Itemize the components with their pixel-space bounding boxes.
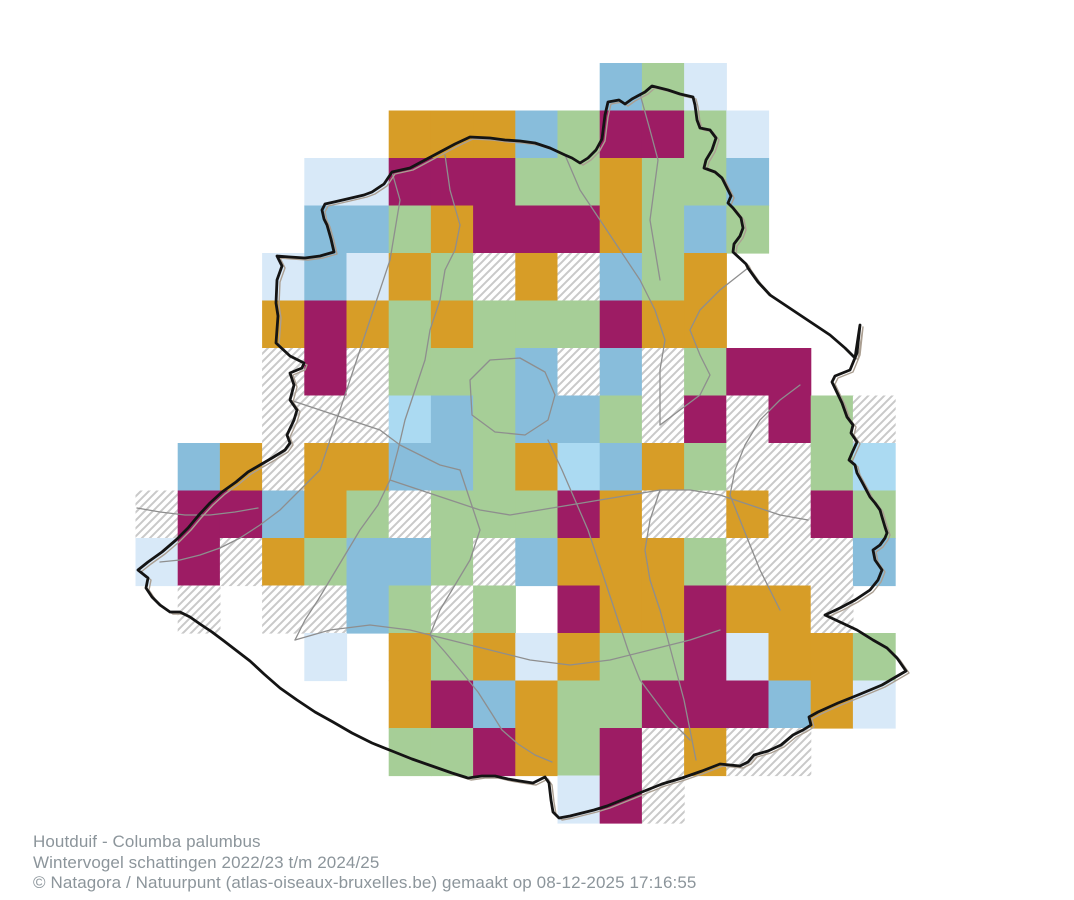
grid-cell	[769, 633, 812, 681]
grid-cell	[811, 443, 854, 491]
grid-cell	[389, 681, 432, 729]
grid-cell	[515, 538, 558, 586]
grid-cell	[389, 491, 432, 539]
grid-cell	[431, 396, 474, 444]
grid-cell	[515, 301, 558, 349]
grid-cell	[684, 586, 727, 634]
grid-cell	[347, 253, 390, 301]
grid-cell	[642, 633, 685, 681]
grid-cell	[515, 158, 558, 206]
grid-cell	[558, 158, 601, 206]
grid-cell	[726, 681, 769, 729]
grid-cell	[769, 538, 812, 586]
grid-cell	[600, 253, 643, 301]
grid-cell	[600, 301, 643, 349]
grid-cell	[473, 301, 516, 349]
grid-cell	[558, 396, 601, 444]
grid-cell	[431, 111, 474, 159]
grid-cell	[684, 491, 727, 539]
grid-cell	[684, 443, 727, 491]
grid-cell	[136, 491, 179, 539]
grid-cell	[642, 443, 685, 491]
survey-subtitle: Wintervogel schattingen 2022/23 t/m 2024…	[33, 853, 696, 874]
grid-cell	[473, 586, 516, 634]
grid-cell	[515, 633, 558, 681]
grid-cell	[515, 111, 558, 159]
grid-cell	[347, 538, 390, 586]
grid-cell	[642, 586, 685, 634]
grid-cell	[473, 348, 516, 396]
grid-cell	[558, 681, 601, 729]
grid-cell	[600, 396, 643, 444]
grid-cell	[431, 681, 474, 729]
species-title: Houtduif - Columba palumbus	[33, 832, 696, 853]
grid-cell	[684, 111, 727, 159]
grid-cell	[642, 253, 685, 301]
grid-cell	[389, 586, 432, 634]
grid-cell	[473, 111, 516, 159]
grid-cell	[684, 348, 727, 396]
grid-cell	[726, 586, 769, 634]
grid-cell	[558, 206, 601, 254]
grid-cell	[389, 538, 432, 586]
grid-cell	[600, 728, 643, 776]
grid-cell	[515, 681, 558, 729]
grid-cell	[431, 491, 474, 539]
grid-cell	[642, 301, 685, 349]
grid-cell	[473, 206, 516, 254]
grid-cell	[769, 681, 812, 729]
grid-cell	[558, 586, 601, 634]
grid-cell	[769, 728, 812, 776]
grid-cell	[515, 253, 558, 301]
grid-cell	[431, 253, 474, 301]
grid-cell	[769, 348, 812, 396]
grid-cell	[726, 396, 769, 444]
grid-cell	[389, 348, 432, 396]
grid-cell	[853, 443, 896, 491]
grid-cell	[642, 538, 685, 586]
grid-cell	[811, 396, 854, 444]
grid-cells	[136, 63, 896, 824]
grid-cell	[726, 111, 769, 159]
grid-cell	[769, 443, 812, 491]
grid-cell	[389, 253, 432, 301]
grid-cell	[304, 301, 347, 349]
grid-cell	[726, 538, 769, 586]
grid-cell	[769, 396, 812, 444]
grid-cell	[558, 728, 601, 776]
grid-cell	[473, 396, 516, 444]
grid-cell	[515, 491, 558, 539]
grid-cell	[389, 301, 432, 349]
grid-cell	[178, 586, 221, 634]
grid-cell	[726, 158, 769, 206]
grid-cell	[684, 681, 727, 729]
grid-cell	[347, 443, 390, 491]
map-canvas: Houtduif - Columba palumbus Wintervogel …	[0, 0, 1074, 900]
grid-cell	[220, 491, 263, 539]
grid-cell	[558, 633, 601, 681]
grid-cell	[684, 301, 727, 349]
grid-cell	[642, 728, 685, 776]
grid-cell	[642, 158, 685, 206]
grid-cell	[347, 396, 390, 444]
credit-line: © Natagora / Natuurpunt (atlas-oiseaux-b…	[33, 873, 696, 894]
grid-cell	[558, 491, 601, 539]
grid-cell	[515, 206, 558, 254]
grid-cell	[684, 206, 727, 254]
grid-cell	[642, 206, 685, 254]
grid-cell	[726, 633, 769, 681]
grid-cell	[853, 396, 896, 444]
grid-cell	[178, 538, 221, 586]
grid-cell	[600, 538, 643, 586]
grid-cell	[811, 491, 854, 539]
grid-cell	[515, 443, 558, 491]
grid-cell	[389, 111, 432, 159]
grid-cell	[769, 491, 812, 539]
grid-cell	[304, 443, 347, 491]
grid-cell	[431, 443, 474, 491]
grid-cell	[558, 253, 601, 301]
grid-cell	[811, 538, 854, 586]
grid-cell	[600, 443, 643, 491]
grid-cell	[473, 728, 516, 776]
grid-cell	[304, 396, 347, 444]
grid-cell	[262, 253, 305, 301]
grid-cell	[684, 253, 727, 301]
map-footer: Houtduif - Columba palumbus Wintervogel …	[33, 832, 696, 894]
grid-cell	[473, 633, 516, 681]
grid-cell	[473, 538, 516, 586]
grid-cell	[347, 491, 390, 539]
grid-cell	[431, 206, 474, 254]
grid-cell	[473, 443, 516, 491]
grid-cell	[178, 443, 221, 491]
grid-cell	[431, 348, 474, 396]
grid-cell	[811, 633, 854, 681]
grid-cell	[304, 491, 347, 539]
grid-cell	[304, 586, 347, 634]
grid-cell	[642, 396, 685, 444]
brussels-atlas-map	[0, 0, 1074, 900]
grid-cell	[558, 301, 601, 349]
grid-cell	[726, 491, 769, 539]
grid-cell	[558, 443, 601, 491]
grid-cell	[262, 538, 305, 586]
grid-cell	[642, 63, 685, 111]
grid-cell	[769, 586, 812, 634]
grid-cell	[262, 301, 305, 349]
grid-cell	[642, 681, 685, 729]
grid-cell	[304, 633, 347, 681]
grid-cell	[473, 253, 516, 301]
grid-cell	[558, 348, 601, 396]
grid-cell	[642, 348, 685, 396]
grid-cell	[473, 158, 516, 206]
grid-cell	[600, 491, 643, 539]
grid-cell	[262, 586, 305, 634]
grid-cell	[558, 538, 601, 586]
grid-cell	[304, 348, 347, 396]
grid-cell	[347, 206, 390, 254]
grid-cell	[515, 396, 558, 444]
grid-cell	[515, 728, 558, 776]
grid-cell	[600, 63, 643, 111]
grid-cell	[684, 63, 727, 111]
grid-cell	[726, 348, 769, 396]
grid-cell	[600, 681, 643, 729]
grid-cell	[642, 111, 685, 159]
grid-cell	[684, 538, 727, 586]
grid-cell	[431, 538, 474, 586]
grid-cell	[600, 158, 643, 206]
grid-cell	[389, 633, 432, 681]
grid-cell	[262, 491, 305, 539]
grid-cell	[431, 586, 474, 634]
grid-cell	[600, 586, 643, 634]
grid-cell	[304, 158, 347, 206]
grid-cell	[853, 538, 896, 586]
grid-cell	[473, 681, 516, 729]
grid-cell	[600, 348, 643, 396]
